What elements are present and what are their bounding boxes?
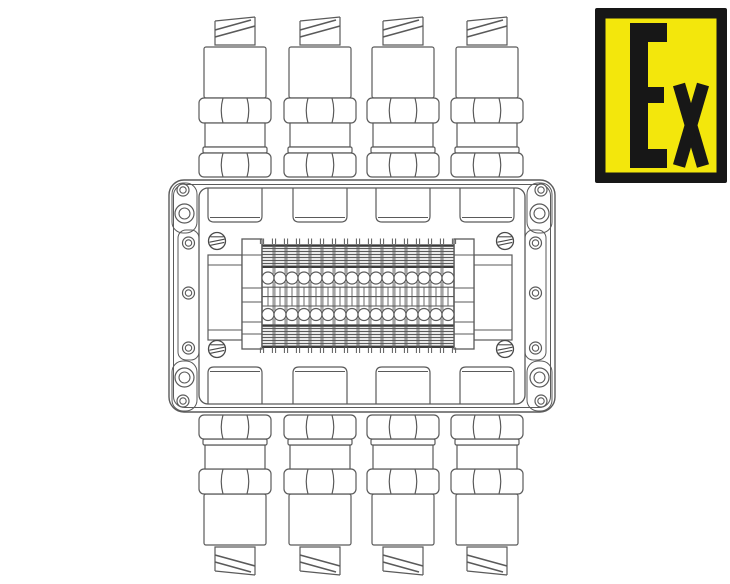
terminal-screw	[310, 309, 322, 321]
terminal-screw	[406, 272, 418, 284]
flange-screw-hole-small	[177, 395, 189, 407]
terminal-screw	[334, 272, 346, 284]
entry-boss	[208, 188, 262, 222]
flange-screw-hole-small	[183, 342, 195, 354]
gland-body	[372, 47, 434, 98]
entry-boss	[293, 367, 347, 404]
entry-boss	[293, 188, 347, 222]
cable-glands-top	[199, 17, 523, 177]
terminal-screw	[406, 309, 418, 321]
terminal-screw	[274, 309, 286, 321]
cable-gland	[284, 415, 356, 575]
cable-gland	[199, 17, 271, 177]
gland-hex-nut	[284, 415, 356, 439]
flange-screw-hole-large	[175, 204, 194, 223]
flange-screw-hole-small	[530, 342, 542, 354]
entry-boss	[208, 367, 262, 404]
terminal-screw	[298, 309, 310, 321]
terminal-screw	[310, 272, 322, 284]
flange-screw-hole-large	[175, 368, 194, 387]
technical-drawing	[0, 0, 730, 584]
gland-body	[289, 47, 351, 98]
gland-hex-nut	[367, 98, 439, 123]
cable-gland	[451, 415, 523, 575]
terminal-screw	[346, 309, 358, 321]
gland-neck	[373, 445, 433, 469]
terminal-screw	[298, 272, 310, 284]
gland-neck-lip	[371, 439, 435, 445]
entry-bosses-bottom	[208, 367, 514, 404]
cable-gland	[367, 415, 439, 575]
gland-hex-nut	[451, 415, 523, 439]
entry-boss	[376, 367, 430, 404]
terminal-screw	[262, 309, 274, 321]
junction-box	[169, 17, 555, 575]
terminal-screw	[346, 272, 358, 284]
flange-screw-hole-large	[530, 204, 549, 223]
gland-hex-nut	[451, 153, 523, 177]
entry-boss	[460, 188, 514, 222]
gland-body	[456, 494, 518, 545]
cable-glands-bottom	[199, 415, 523, 575]
cable-gland	[284, 17, 356, 177]
terminal-screw	[358, 309, 370, 321]
terminal-screw	[418, 309, 430, 321]
gland-hex-nut	[284, 98, 356, 123]
gland-body	[204, 494, 266, 545]
cable-gland	[199, 415, 271, 575]
gland-neck	[457, 123, 517, 147]
gland-neck	[373, 123, 433, 147]
terminal-strip	[260, 239, 455, 354]
din-rail-end	[208, 255, 242, 340]
flange-screw-hole-small	[183, 237, 195, 249]
terminal-screw	[394, 309, 406, 321]
gland-hex-nut	[367, 153, 439, 177]
gland-neck-lip	[455, 147, 519, 153]
terminal-screw	[286, 309, 298, 321]
cable-gland	[451, 17, 523, 177]
terminal-screw	[262, 272, 274, 284]
cover-screw	[497, 341, 514, 358]
gland-neck-lip	[288, 147, 352, 153]
terminal-screw	[322, 272, 334, 284]
terminal-screw	[370, 309, 382, 321]
terminal-screw	[286, 272, 298, 284]
gland-hex-nut	[284, 469, 356, 494]
terminal-screw	[382, 309, 394, 321]
terminal-screw	[274, 272, 286, 284]
gland-hex-nut	[199, 469, 271, 494]
terminal-screw	[382, 272, 394, 284]
terminal-screw	[430, 272, 442, 284]
flange-screw-hole-small	[177, 184, 189, 196]
gland-neck	[290, 123, 350, 147]
cover-screw	[209, 233, 226, 250]
terminal-screw	[334, 309, 346, 321]
flange-screw-hole-small	[183, 287, 195, 299]
gland-neck	[205, 445, 265, 469]
entry-bosses-top	[208, 188, 514, 222]
gland-hex-nut	[367, 469, 439, 494]
gland-hex-nut	[199, 415, 271, 439]
terminal-screw	[394, 272, 406, 284]
din-rail-end	[474, 255, 512, 340]
terminal-screw	[322, 309, 334, 321]
terminal-screw	[418, 272, 430, 284]
gland-hex-nut	[367, 415, 439, 439]
cable-gland	[367, 17, 439, 177]
gland-neck	[205, 123, 265, 147]
flange-screw-hole-small	[535, 184, 547, 196]
flange-screw-hole-small	[530, 237, 542, 249]
entry-boss	[376, 188, 430, 222]
gland-neck-lip	[371, 147, 435, 153]
terminal-screw	[442, 272, 454, 284]
ex-marking	[595, 8, 727, 183]
gland-neck-lip	[203, 147, 267, 153]
flange-screw-hole-small	[535, 395, 547, 407]
cover-screw	[497, 233, 514, 250]
cover-screw	[209, 341, 226, 358]
gland-hex-nut	[284, 153, 356, 177]
terminal-screw	[442, 309, 454, 321]
flange-screw-hole-small	[530, 287, 542, 299]
gland-body	[204, 47, 266, 98]
gland-body	[289, 494, 351, 545]
gland-hex-nut	[199, 98, 271, 123]
gland-neck-lip	[203, 439, 267, 445]
terminal-screw	[430, 309, 442, 321]
gland-neck	[457, 445, 517, 469]
screenshot-root: Ex	[0, 0, 730, 584]
gland-body	[456, 47, 518, 98]
gland-neck-lip	[288, 439, 352, 445]
gland-neck-lip	[455, 439, 519, 445]
flange-screw-hole-large	[530, 368, 549, 387]
gland-hex-nut	[451, 98, 523, 123]
gland-hex-nut	[199, 153, 271, 177]
entry-boss	[460, 367, 514, 404]
terminal-screw	[370, 272, 382, 284]
terminal-screw	[358, 272, 370, 284]
gland-hex-nut	[451, 469, 523, 494]
gland-neck	[290, 445, 350, 469]
gland-body	[372, 494, 434, 545]
